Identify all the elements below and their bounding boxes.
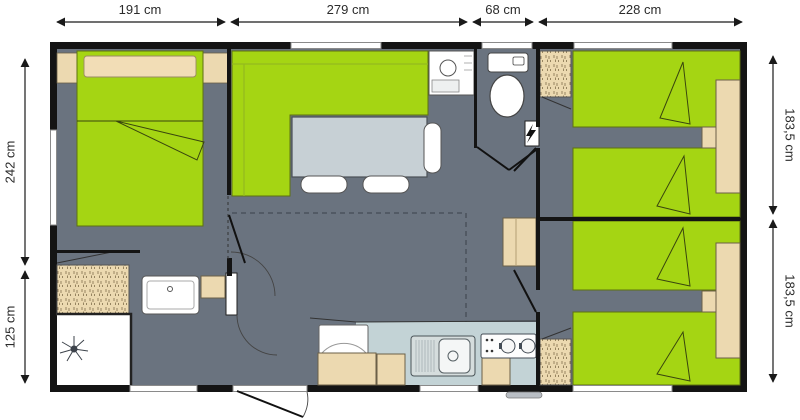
flush-button [513,57,524,65]
floorplan-drawing [0,0,800,420]
wardrobe-column [716,80,740,193]
dim-top-4: 228 cm [619,2,662,17]
toilet-bowl-icon [490,75,524,117]
bedside-shelf-left [57,53,77,83]
dim-top-2: 279 cm [327,2,370,17]
bedside-shelf-right [203,53,228,83]
dim-top-3: 68 cm [485,2,520,17]
cabinet-body [503,218,536,266]
dim-left-2: 125 cm [3,306,18,349]
dim-right-1: 183,5 cm [783,108,798,161]
base-cabinet [482,358,510,385]
washbasin [142,276,199,314]
entry-door-opening [233,386,307,392]
sink-bowl [439,339,470,373]
bedside-step [702,127,716,148]
pillow [84,56,196,77]
chair [424,123,441,173]
bedside-step [702,291,716,312]
hall-cabinet [503,218,536,266]
dining-table [292,117,427,177]
wardrobe [57,265,129,315]
dim-right-2: 183,5 cm [783,274,798,327]
dim-top-1: 191 cm [119,2,162,17]
wardrobe [540,51,571,97]
twin-bed [573,221,740,290]
drainboard-lines [416,340,434,372]
vanity-cabinet [201,276,225,298]
twin-bed [573,148,740,217]
entry-door-arc [303,392,308,417]
shower-tray [57,315,131,385]
entry-step [506,392,542,398]
twin-bed [573,51,740,127]
dim-left-1: 242 cm [3,141,18,184]
wardrobe-column [716,243,740,358]
burner [501,339,515,353]
master-bedroom [57,51,228,226]
base-cabinet [318,353,376,385]
entry-door-leaf [237,391,303,417]
kitchen-sink [411,336,475,376]
burner [521,339,535,353]
wardrobe [540,339,571,385]
hob [481,334,536,358]
base-cabinet [377,354,405,385]
unit-shelf [432,80,459,92]
kitchenette-unit [429,51,474,95]
bathroom-door-leaf [226,273,237,315]
chair [301,176,347,193]
floorplan-screenshot: 191 cm 279 cm 68 cm 228 cm 242 cm 125 cm… [0,0,800,420]
chair [363,176,409,193]
kitchen [310,318,536,385]
